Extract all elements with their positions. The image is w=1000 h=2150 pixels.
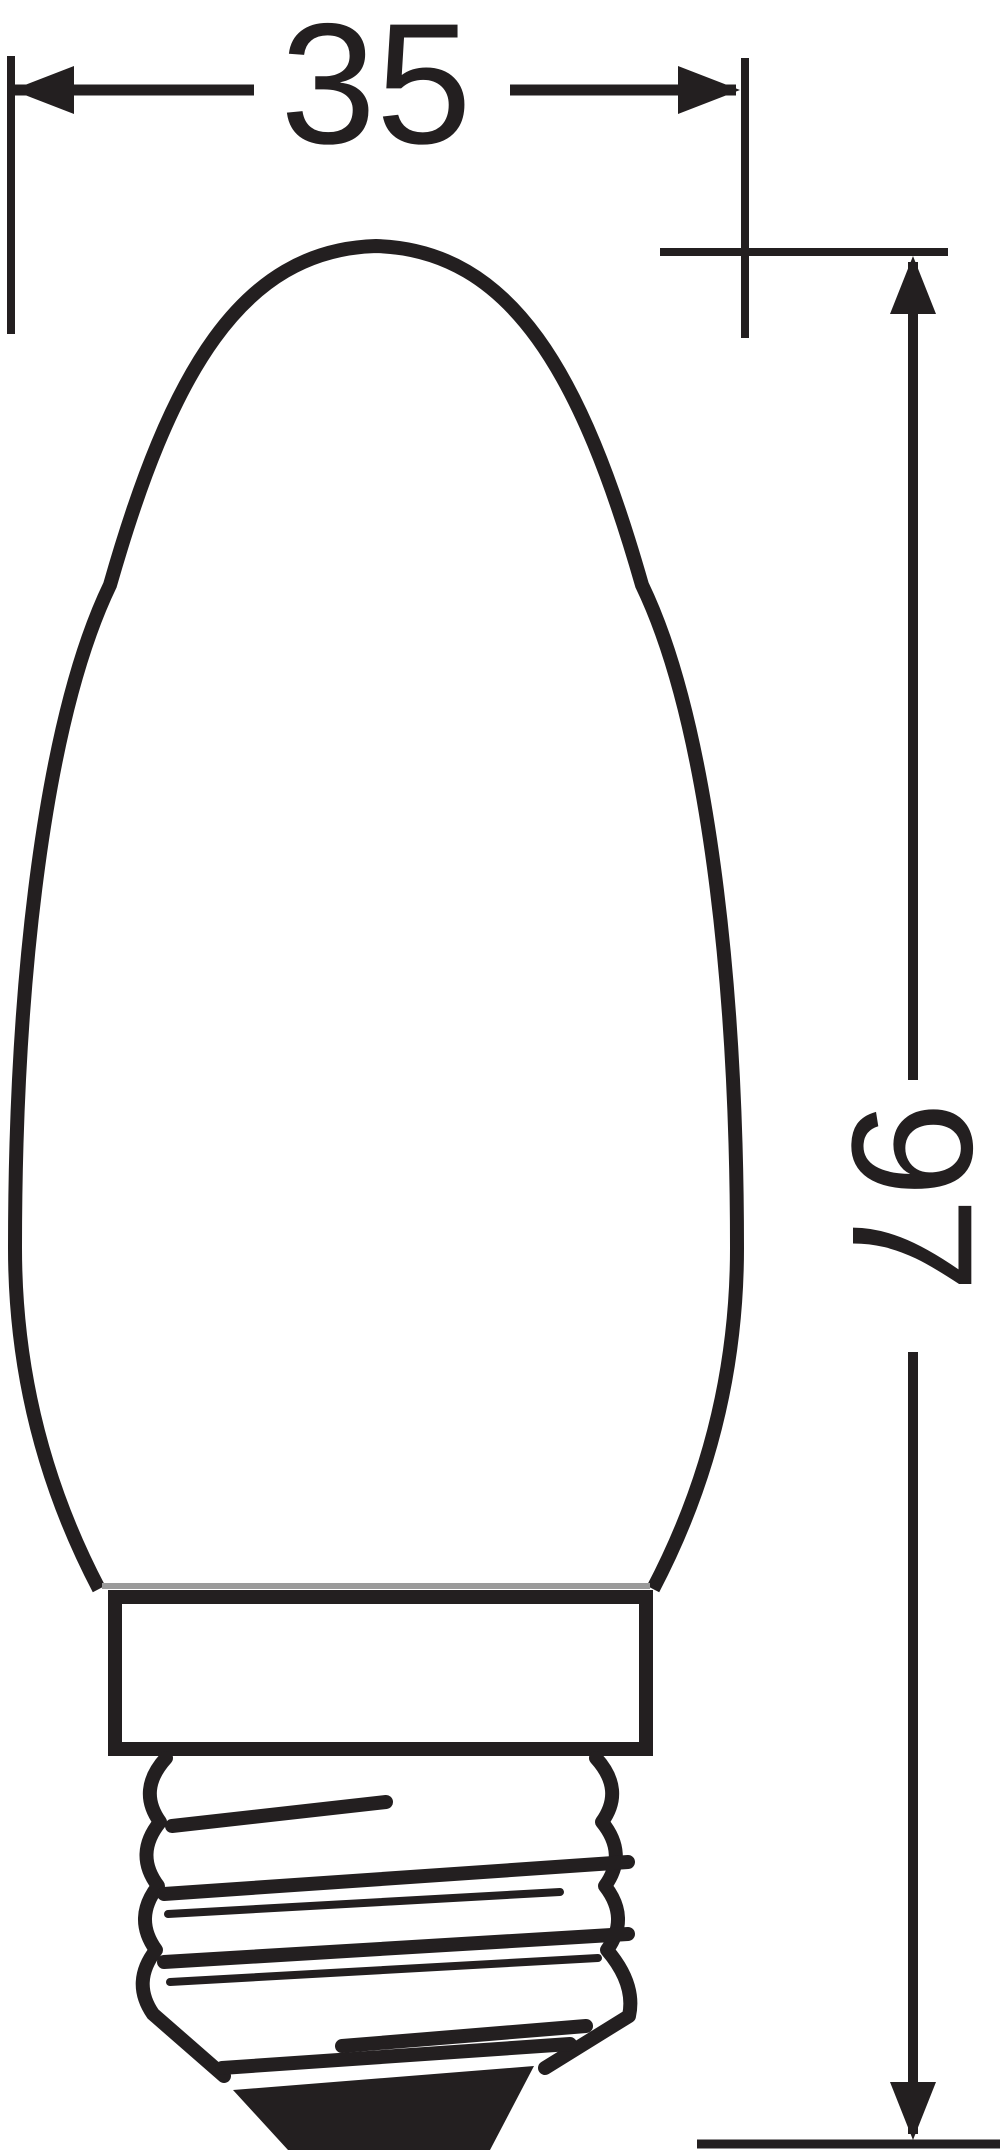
thread-line-1 (172, 1802, 386, 1826)
drawing-canvas: 35 97 (0, 0, 1000, 2150)
width-dimension: 35 (11, 0, 745, 338)
arrow-right-icon (678, 66, 740, 114)
arrow-down-icon (890, 2082, 936, 2140)
bulb-dimension-drawing: 35 97 (0, 0, 1000, 2150)
arrow-left-icon (12, 66, 74, 114)
height-dimension-label: 97 (816, 1101, 1000, 1292)
base-skirt (115, 1597, 646, 1749)
bulb-glass (15, 246, 737, 1589)
width-dimension-label: 35 (280, 0, 471, 180)
arrow-up-icon (890, 256, 936, 314)
foot-contact (233, 2066, 534, 2150)
bulb-glass-outline (15, 246, 737, 1589)
lamp-base (115, 1597, 646, 2150)
height-dimension: 97 (660, 252, 1000, 2144)
